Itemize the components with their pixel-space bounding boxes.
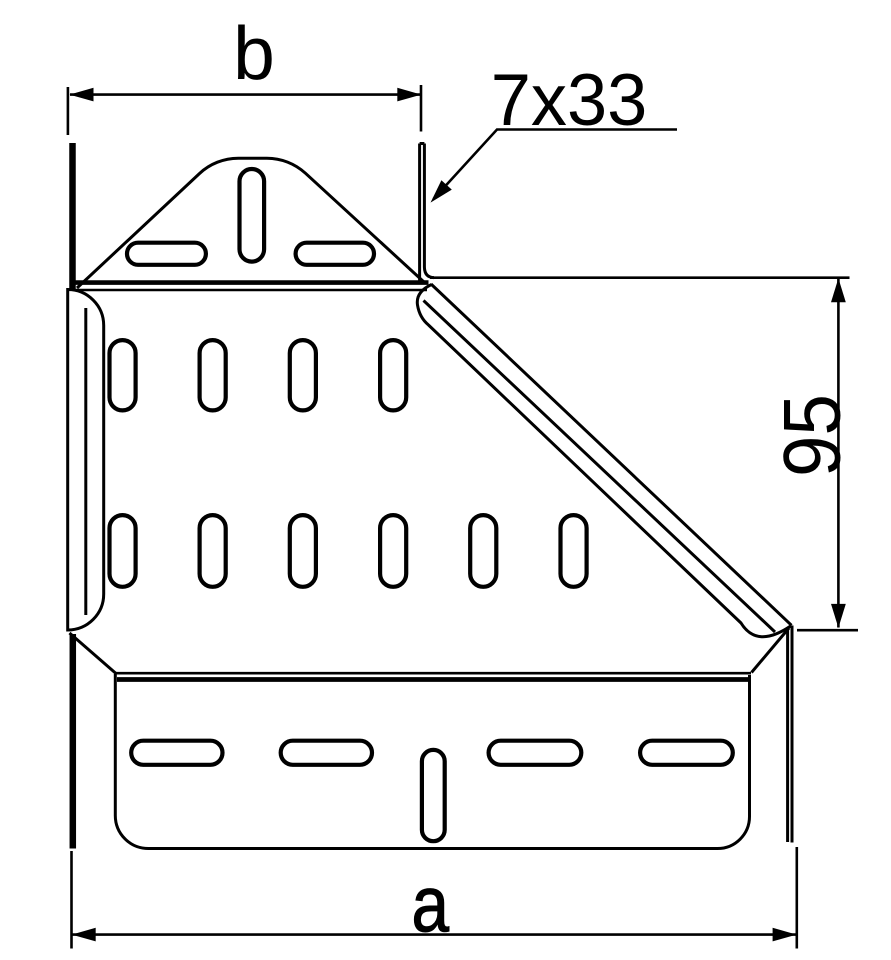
svg-text:b: b xyxy=(233,11,275,95)
svg-text:95: 95 xyxy=(767,394,857,477)
